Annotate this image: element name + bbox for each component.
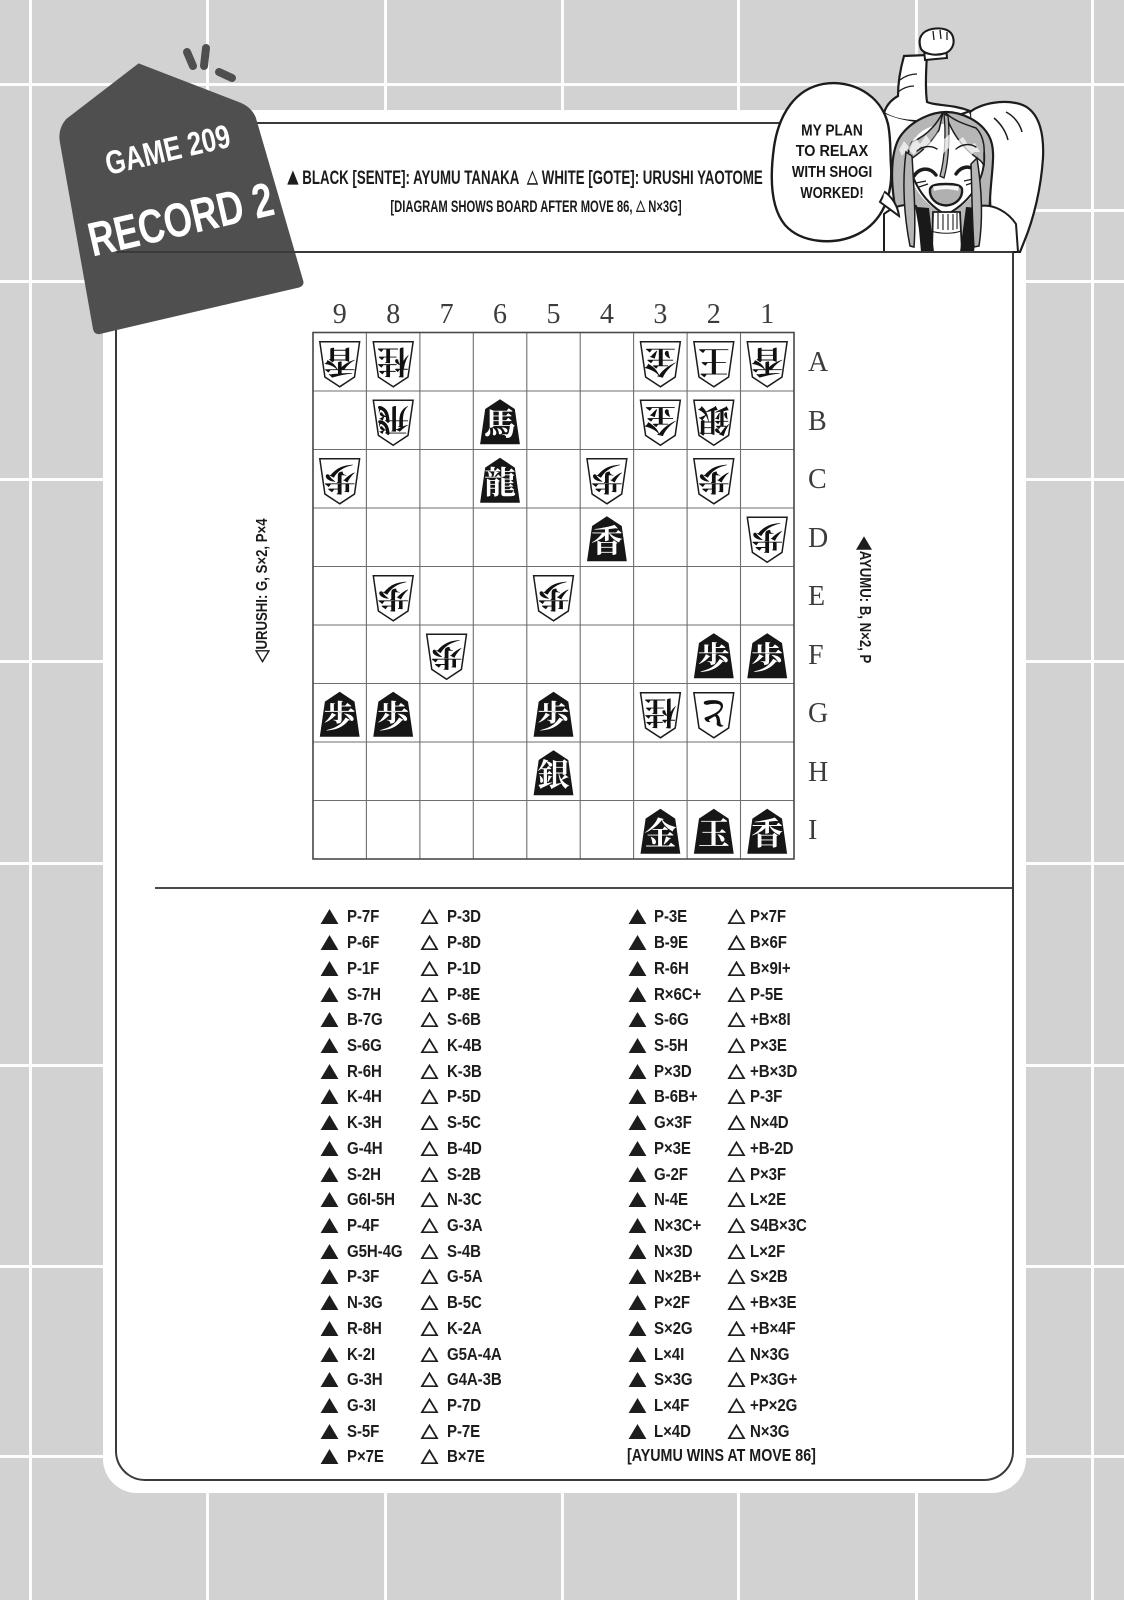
svg-text:8: 8 — [386, 299, 400, 330]
svg-text:7: 7 — [440, 299, 454, 330]
svg-text:WORKED!: WORKED! — [800, 185, 863, 203]
svg-text:MY PLAN: MY PLAN — [801, 122, 863, 140]
svg-text:3: 3 — [653, 299, 667, 330]
svg-text:WITH SHOGI: WITH SHOGI — [792, 164, 872, 181]
svg-text:1: 1 — [760, 299, 774, 330]
svg-text:E: E — [808, 581, 825, 612]
svg-text:B: B — [808, 406, 827, 437]
svg-text:A: A — [808, 347, 829, 378]
svg-text:I: I — [808, 815, 817, 846]
svg-text:D: D — [808, 523, 828, 554]
svg-text:TO RELAX: TO RELAX — [796, 142, 869, 160]
svg-text:C: C — [808, 464, 827, 495]
svg-text:6: 6 — [493, 299, 507, 330]
svg-text:G: G — [808, 698, 828, 729]
svg-text:5: 5 — [547, 299, 561, 330]
svg-text:H: H — [808, 757, 828, 788]
svg-text:2: 2 — [707, 299, 721, 330]
svg-text:4: 4 — [600, 299, 614, 330]
svg-text:F: F — [808, 640, 824, 671]
